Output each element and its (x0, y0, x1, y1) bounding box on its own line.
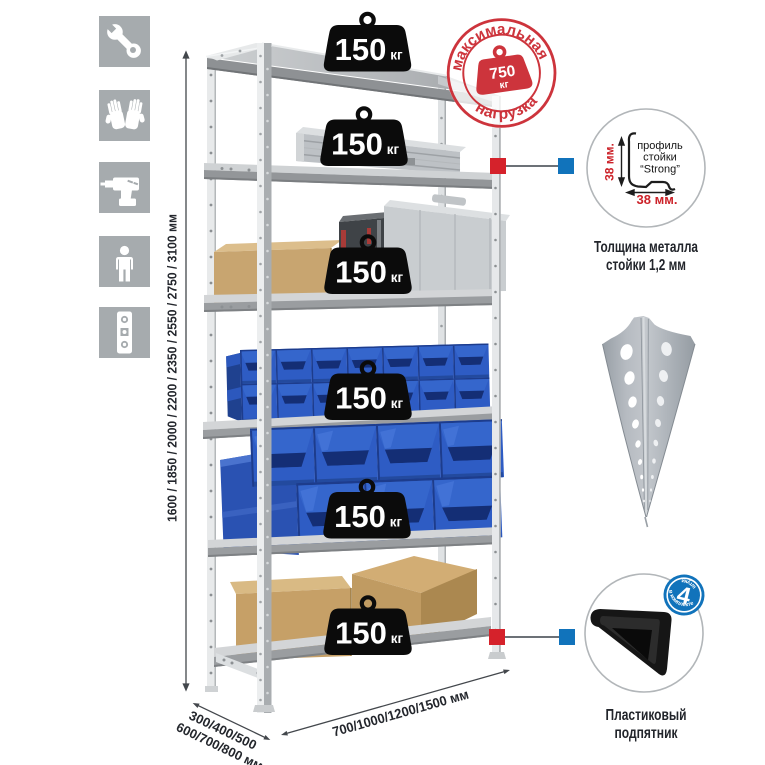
svg-text:1600 / 1850 / 2000 / 2200 / 23: 1600 / 1850 / 2000 / 2200 / 2350 / 2550 … (165, 214, 180, 522)
svg-text:профиль: профиль (637, 140, 683, 152)
svg-text:38 мм.: 38 мм. (637, 192, 678, 207)
svg-text:кг: кг (499, 79, 510, 91)
svg-text:подпятник: подпятник (615, 725, 678, 742)
svg-text:“Strong”: “Strong” (640, 164, 680, 176)
svg-text:Пластиковый: Пластиковый (606, 707, 687, 724)
svg-text:стойки 1,2 мм: стойки 1,2 мм (606, 257, 686, 274)
svg-text:38 мм.: 38 мм. (603, 143, 617, 181)
svg-text:Толщина металла: Толщина металла (594, 239, 698, 256)
svg-text:стойки: стойки (643, 152, 677, 164)
